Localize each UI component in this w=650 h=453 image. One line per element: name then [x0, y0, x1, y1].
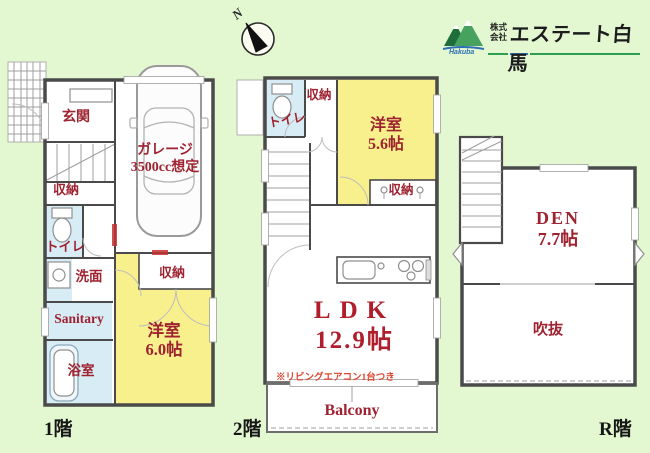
room-label-senmen: 洗面	[66, 269, 112, 285]
yoshitsu-2f-line1: 洋室	[336, 117, 436, 136]
room-label-balcony: Balcony	[302, 402, 402, 421]
ldk-line1: LDK	[277, 296, 432, 326]
compass-icon	[242, 23, 274, 55]
floorplan-page: N 株式 会社 エステート白馬 Hakuba 玄関 ガレージ 3500cc想定 …	[0, 0, 650, 453]
logo-subtext: Hakuba	[449, 49, 474, 56]
logo-prefix-line2: 会社	[490, 32, 507, 42]
room-label-fukinuke: 吹抜	[508, 322, 588, 340]
floor-label-rf: R階	[599, 414, 632, 441]
room-label-garage: ガレージ 3500cc想定	[116, 143, 214, 176]
room-label-toilet-1f: トイレ	[42, 239, 88, 254]
room-label-yoshitsu-1f: 洋室 6.0帖	[114, 321, 214, 360]
garage-line2: 3500cc想定	[116, 160, 214, 177]
ldk-line2: 12.9帖	[277, 326, 432, 356]
room-label-storage-1f-a: 収納	[44, 182, 88, 197]
room-label-bathroom: 浴室	[58, 363, 104, 379]
den-line1: DEN	[508, 208, 608, 229]
room-label-storage-2f-top: 収納	[297, 88, 341, 103]
logo-prefix-line1: 株式	[490, 22, 507, 32]
floor-label-2f: 2階	[233, 414, 262, 441]
logo-company-name: エステート白馬	[507, 18, 647, 76]
room-label-den: DEN 7.7帖	[508, 208, 608, 250]
floor-label-1f: 1階	[44, 414, 73, 441]
room-label-ldk: LDK 12.9帖	[277, 296, 432, 355]
room-label-storage-2f-bottom: 収納	[379, 183, 423, 198]
floorR-plan	[453, 136, 644, 385]
logo-company-prefix: 株式 会社	[490, 22, 507, 42]
room-label-storage-1f-b: 収納	[150, 265, 194, 280]
garage-line1: ガレージ	[116, 143, 214, 160]
yoshitsu-1f-line2: 6.0帖	[114, 340, 214, 359]
yoshitsu-2f-line2: 5.6帖	[336, 136, 436, 155]
aircon-note: ※リビングエアコン1台つき	[276, 369, 395, 383]
company-logo: 株式 会社 エステート白馬 Hakuba	[440, 13, 645, 63]
room-label-genkan: 玄関	[54, 110, 98, 127]
den-line2: 7.7帖	[508, 229, 608, 250]
room-label-yoshitsu-2f: 洋室 5.6帖	[336, 117, 436, 155]
room-label-sanitary: Sanitary	[44, 311, 114, 327]
yoshitsu-1f-line1: 洋室	[114, 321, 214, 340]
